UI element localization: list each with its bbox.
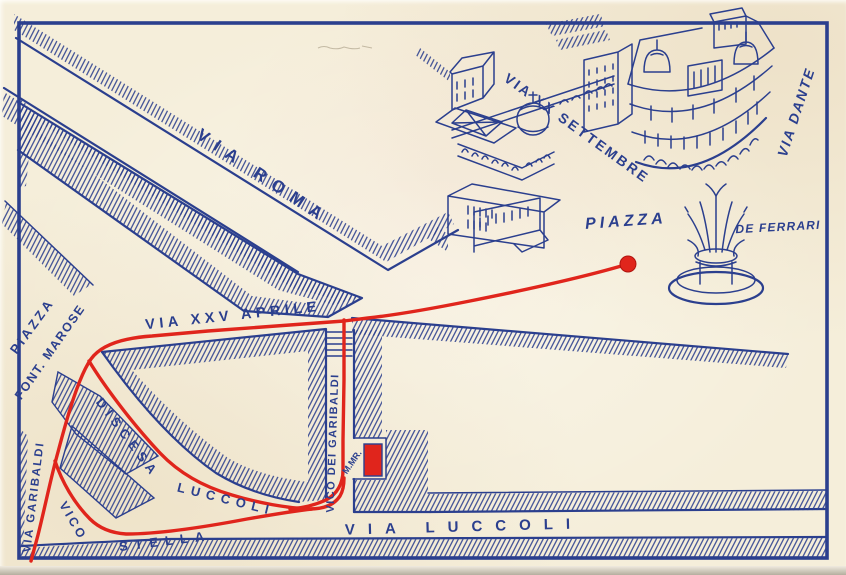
- label-via-garibaldi: VIA GARIBALDI: [21, 441, 47, 553]
- map-card: VIA ROMAVIA XX SETTEMBREVIA DANTEPIAZZAD…: [0, 0, 846, 575]
- label-vico-stella-2: STELLA: [118, 528, 212, 554]
- label-vico-dei-garibaldi: VICO DEI GARIBALDI: [325, 373, 342, 513]
- label-piazza-de-ferrari-1: PIAZZA: [585, 210, 668, 234]
- label-via-xx-settembre: VIA XX SETTEMBRE: [501, 70, 652, 186]
- label-mmr: M.MR.: [340, 448, 363, 475]
- label-via-dante: VIA DANTE: [774, 65, 818, 158]
- label-discesa-luccoli-2: LUCCOLI: [176, 480, 276, 519]
- label-via-roma: VIA ROMA: [193, 125, 334, 229]
- street-labels: VIA ROMAVIA XX SETTEMBREVIA DANTEPIAZZAD…: [0, 0, 846, 575]
- label-vico-stella-1: VICO: [56, 499, 89, 543]
- label-piazza-de-ferrari-2: DE FERRARI: [735, 218, 821, 236]
- label-piazza-fontane-marose-2: FONT. MAROSE: [12, 302, 88, 402]
- label-discesa-luccoli-1: DISCESA: [93, 395, 163, 481]
- label-via-xxv-aprile: VIA XXV APRILE: [144, 299, 321, 333]
- label-via-luccoli: VIA LUCCOLI: [345, 515, 584, 538]
